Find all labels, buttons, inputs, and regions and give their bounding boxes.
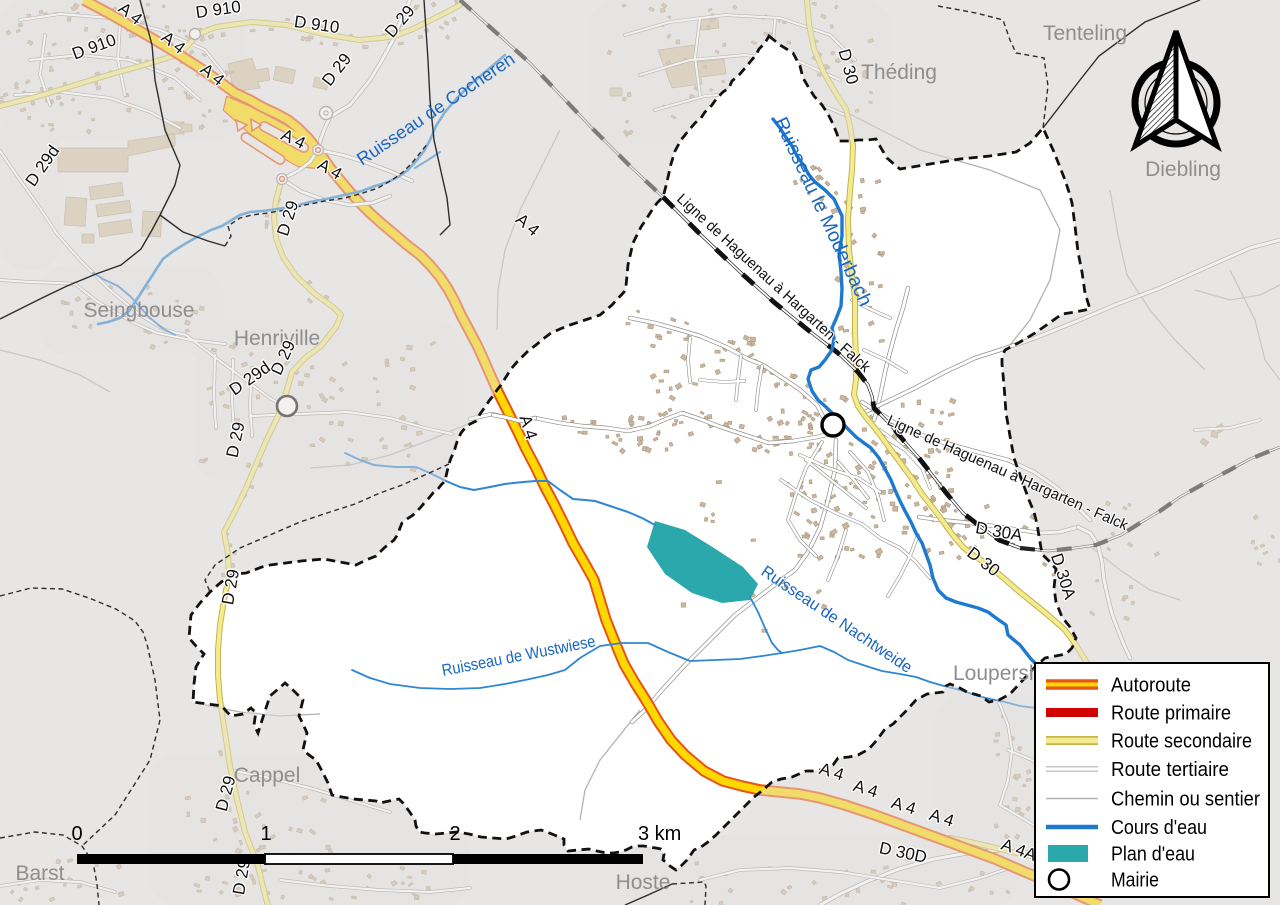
svg-text:Théding: Théding	[861, 61, 937, 84]
svg-text:Route primaire: Route primaire	[1111, 702, 1231, 725]
svg-text:Plan d'eau: Plan d'eau	[1111, 843, 1195, 866]
svg-text:Route secondaire: Route secondaire	[1111, 730, 1252, 753]
svg-text:1: 1	[260, 823, 271, 845]
svg-text:Hoste: Hoste	[616, 871, 671, 894]
svg-text:Cappel: Cappel	[234, 764, 301, 787]
svg-text:Route tertiaire: Route tertiaire	[1111, 758, 1229, 781]
svg-text:2: 2	[449, 823, 460, 845]
svg-text:3 km: 3 km	[638, 823, 681, 845]
svg-text:Mairie: Mairie	[1111, 869, 1159, 892]
svg-text:Autoroute: Autoroute	[1111, 674, 1191, 697]
svg-text:Cours d'eau: Cours d'eau	[1111, 816, 1207, 839]
svg-text:Chemin ou sentier: Chemin ou sentier	[1111, 788, 1260, 811]
svg-text:Diebling: Diebling	[1145, 158, 1221, 181]
svg-text:Tenteling: Tenteling	[1043, 22, 1127, 45]
svg-text:Seingbouse: Seingbouse	[84, 299, 195, 322]
svg-text:0: 0	[71, 823, 82, 845]
svg-text:Barst: Barst	[15, 862, 64, 885]
